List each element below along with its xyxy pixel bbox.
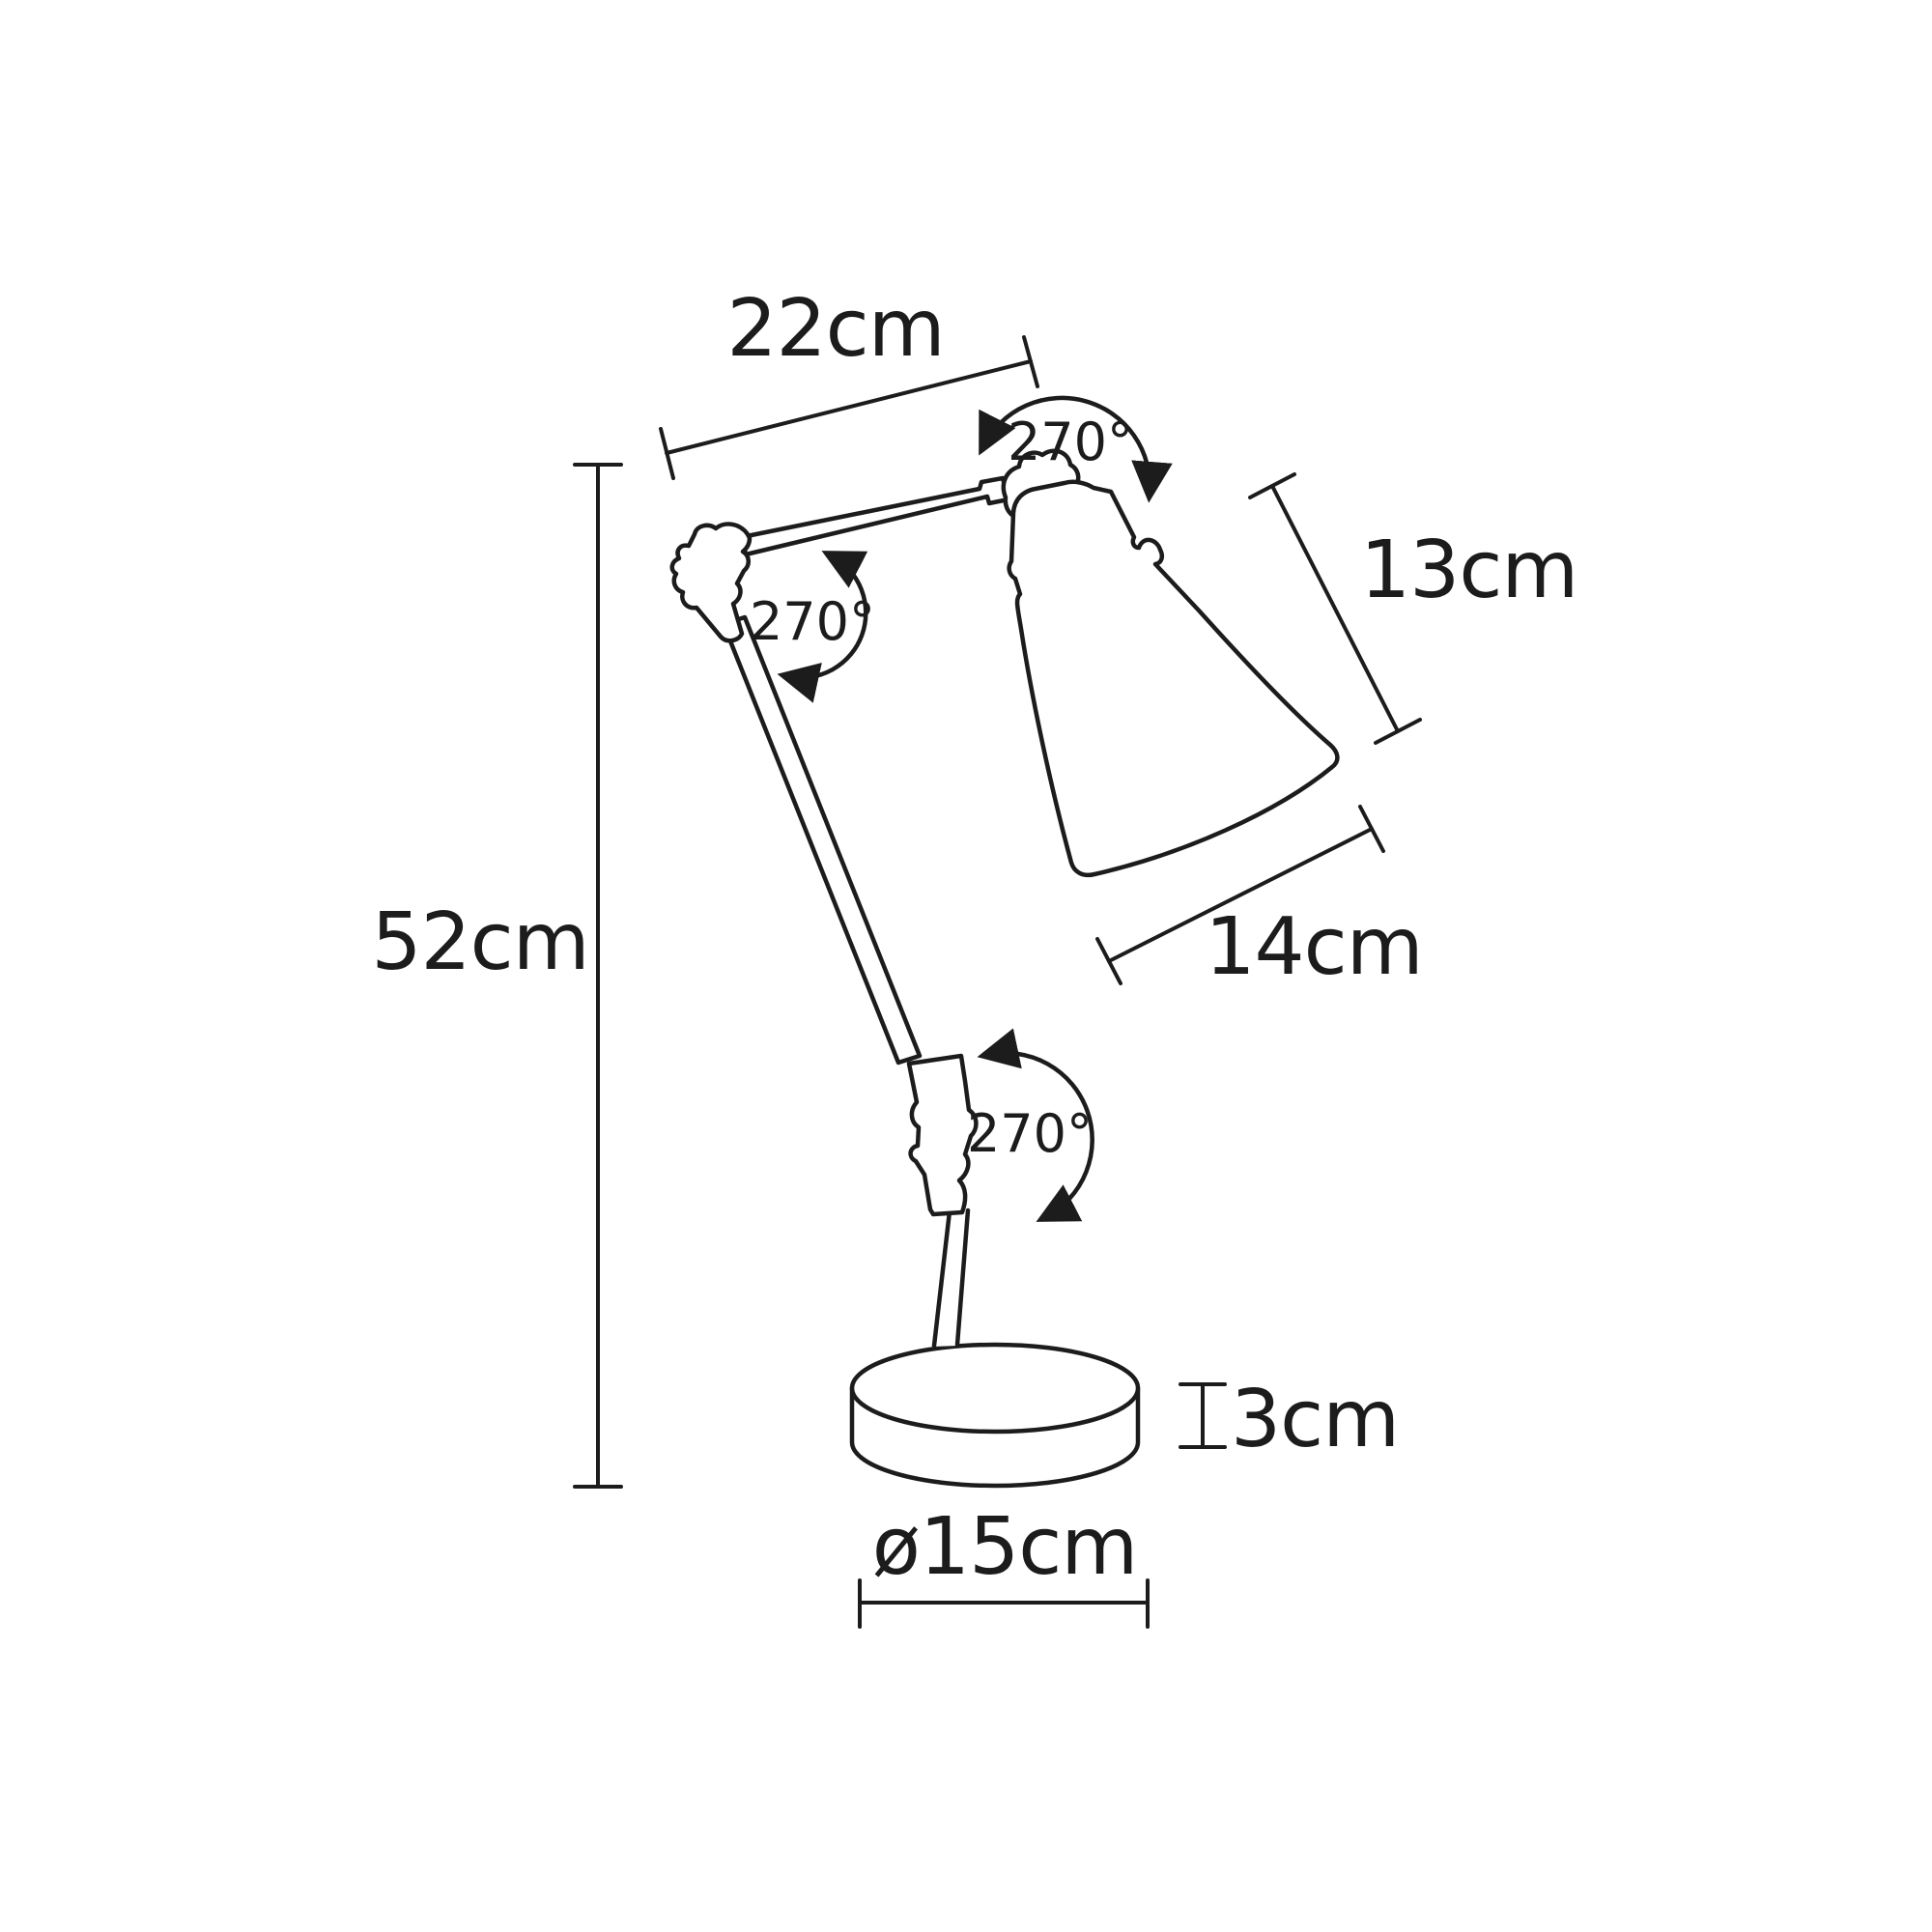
lamp-upper-arm: [742, 478, 1009, 554]
dimension-arm-length: 22cm: [661, 283, 1037, 478]
label-arm-length: 22cm: [726, 283, 944, 375]
dim-tick: [1250, 474, 1294, 497]
lamp-shade: [1009, 482, 1338, 875]
dimension-shade-height: 13cm: [1250, 474, 1577, 743]
lamp-dimension-diagram: 22cm 52cm 13cm 14cm 3cm ø15cm 270°: [0, 0, 1932, 1932]
dimension-base-diameter: ø15cm: [860, 1501, 1148, 1627]
base-top-ellipse: [852, 1345, 1138, 1432]
label-rotation-top: 270°: [1008, 412, 1133, 472]
rotation-elbow-joint: 270°: [750, 555, 875, 678]
label-base-height: 3cm: [1231, 1374, 1399, 1465]
label-rotation-elbow: 270°: [750, 591, 875, 652]
label-shade-width: 14cm: [1205, 901, 1422, 993]
lamp-base: [852, 1345, 1138, 1486]
label-total-height: 52cm: [371, 896, 588, 988]
rotation-base-joint: 270°: [967, 1053, 1093, 1217]
lamp-lower-arm: [724, 617, 920, 1063]
dim-tick: [1376, 720, 1420, 743]
dimension-base-height: 3cm: [1180, 1374, 1399, 1465]
label-rotation-base: 270°: [967, 1103, 1093, 1164]
lamp-stem: [933, 1210, 969, 1347]
dim-tick: [1097, 939, 1121, 983]
lamp-elbow-joint: [672, 524, 750, 640]
dim-line-22cm: [667, 361, 1031, 453]
label-base-diameter: ø15cm: [872, 1501, 1137, 1593]
label-shade-height: 13cm: [1360, 525, 1577, 616]
dim-tick: [1360, 807, 1383, 851]
dimension-total-height: 52cm: [371, 465, 621, 1487]
